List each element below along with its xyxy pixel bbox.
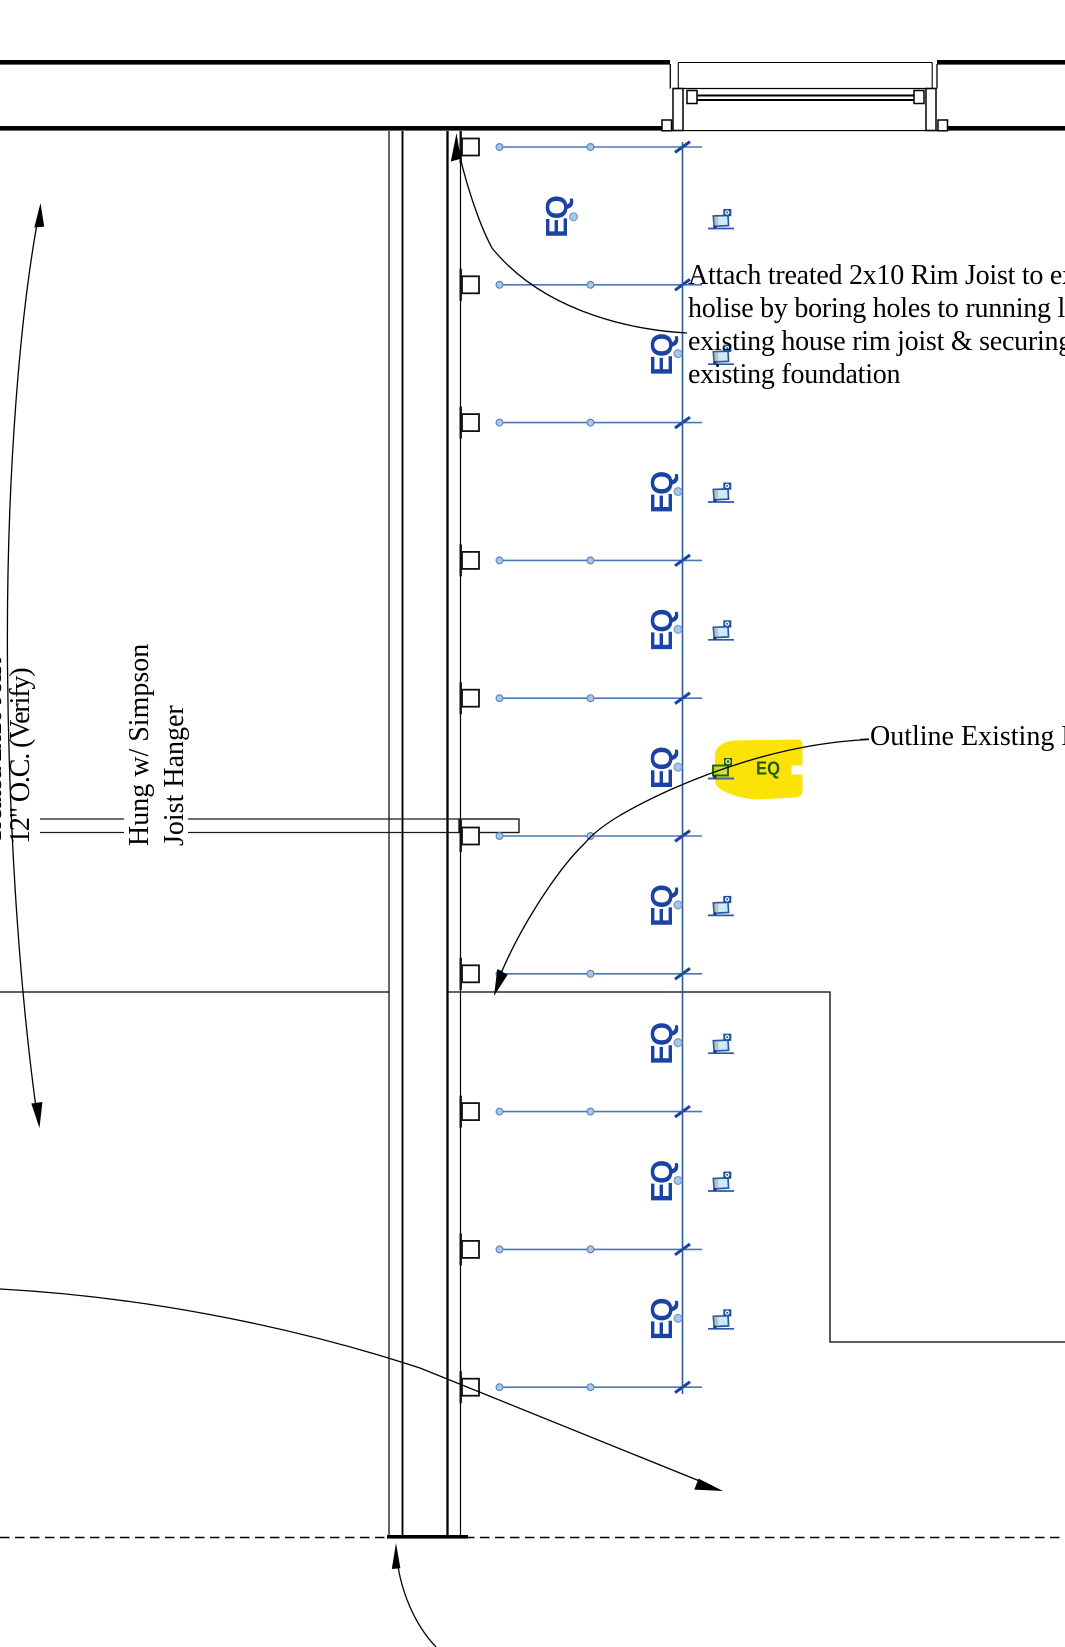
svg-text:EQ: EQ	[756, 759, 780, 779]
svg-text:EQ: EQ	[539, 195, 574, 238]
